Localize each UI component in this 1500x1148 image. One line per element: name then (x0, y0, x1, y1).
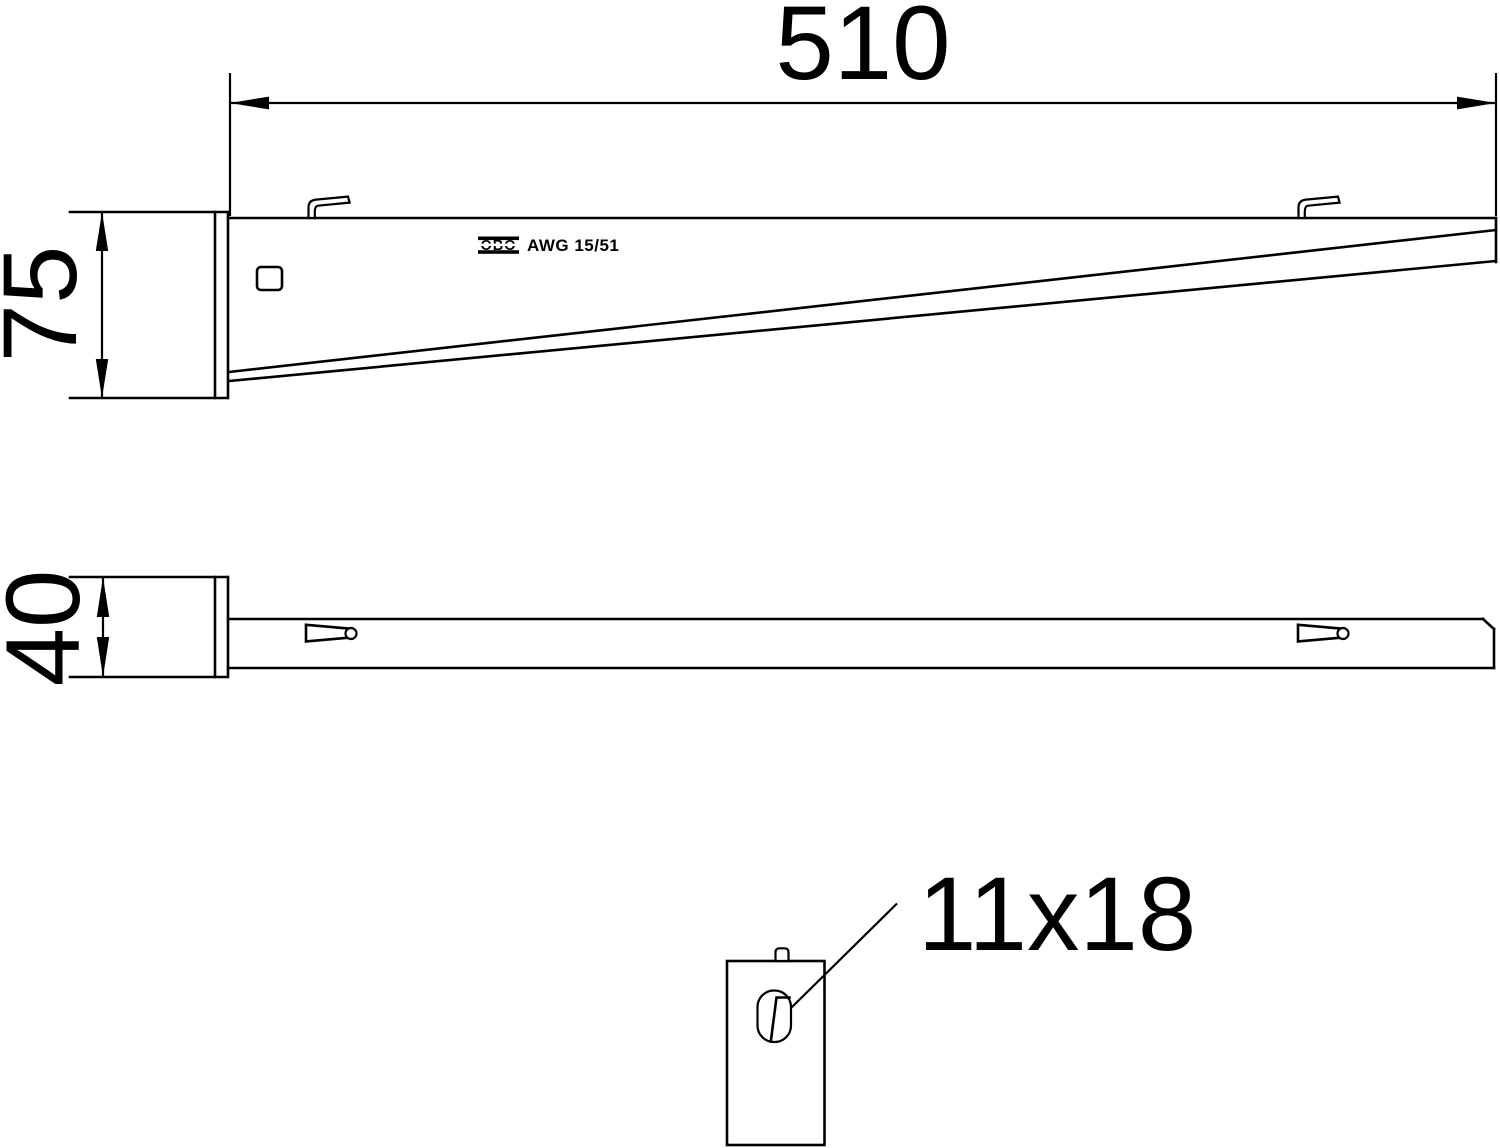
side-view: OBO AWG 15/51 (70, 197, 1496, 398)
dimension-width: 40 (0, 570, 109, 687)
square-hole (257, 267, 282, 290)
bracket-technical-drawing: OBO AWG 15/51 510 75 (0, 0, 1500, 1148)
arm-bottom-outer-edge (229, 261, 1496, 381)
obo-logo-strike (477, 244, 520, 246)
drawing-canvas: OBO AWG 15/51 510 75 (0, 0, 1500, 1148)
dimension-height: 75 (0, 212, 108, 398)
keyhole-slot-plan-1 (306, 625, 357, 642)
retaining-tab-side-1 (309, 197, 350, 218)
dim-length-label: 510 (775, 0, 950, 102)
slot-round-end (346, 628, 357, 639)
front-view-plate: 11x18 (727, 856, 1196, 1145)
arm-plan-chamfer (1483, 619, 1494, 629)
obo-logo: OBO (477, 237, 520, 255)
dim-height-label: 75 (0, 246, 99, 363)
keyhole-slot-front (758, 991, 792, 1043)
arrowhead-up (96, 212, 108, 251)
plan-view (70, 577, 1494, 677)
product-code-label: AWG 15/51 (527, 236, 619, 255)
slot-taper-outline (1298, 625, 1343, 642)
slot-leader-line (792, 904, 898, 1008)
retaining-tab-front (776, 948, 789, 961)
slot-taper-outline (306, 625, 351, 642)
retaining-tab-side-2 (1299, 197, 1340, 218)
dim-width-label: 40 (0, 570, 102, 687)
slot-size-label: 11x18 (918, 856, 1196, 973)
slot-round-end (1338, 628, 1349, 639)
arrowhead-left (230, 97, 269, 110)
dimension-length: 510 (230, 0, 1496, 216)
keyhole-slot-plan-2 (1298, 625, 1349, 642)
arm-bottom-inner-edge (229, 230, 1496, 372)
arrowhead-down (96, 359, 108, 398)
arrowhead-right (1457, 97, 1496, 110)
